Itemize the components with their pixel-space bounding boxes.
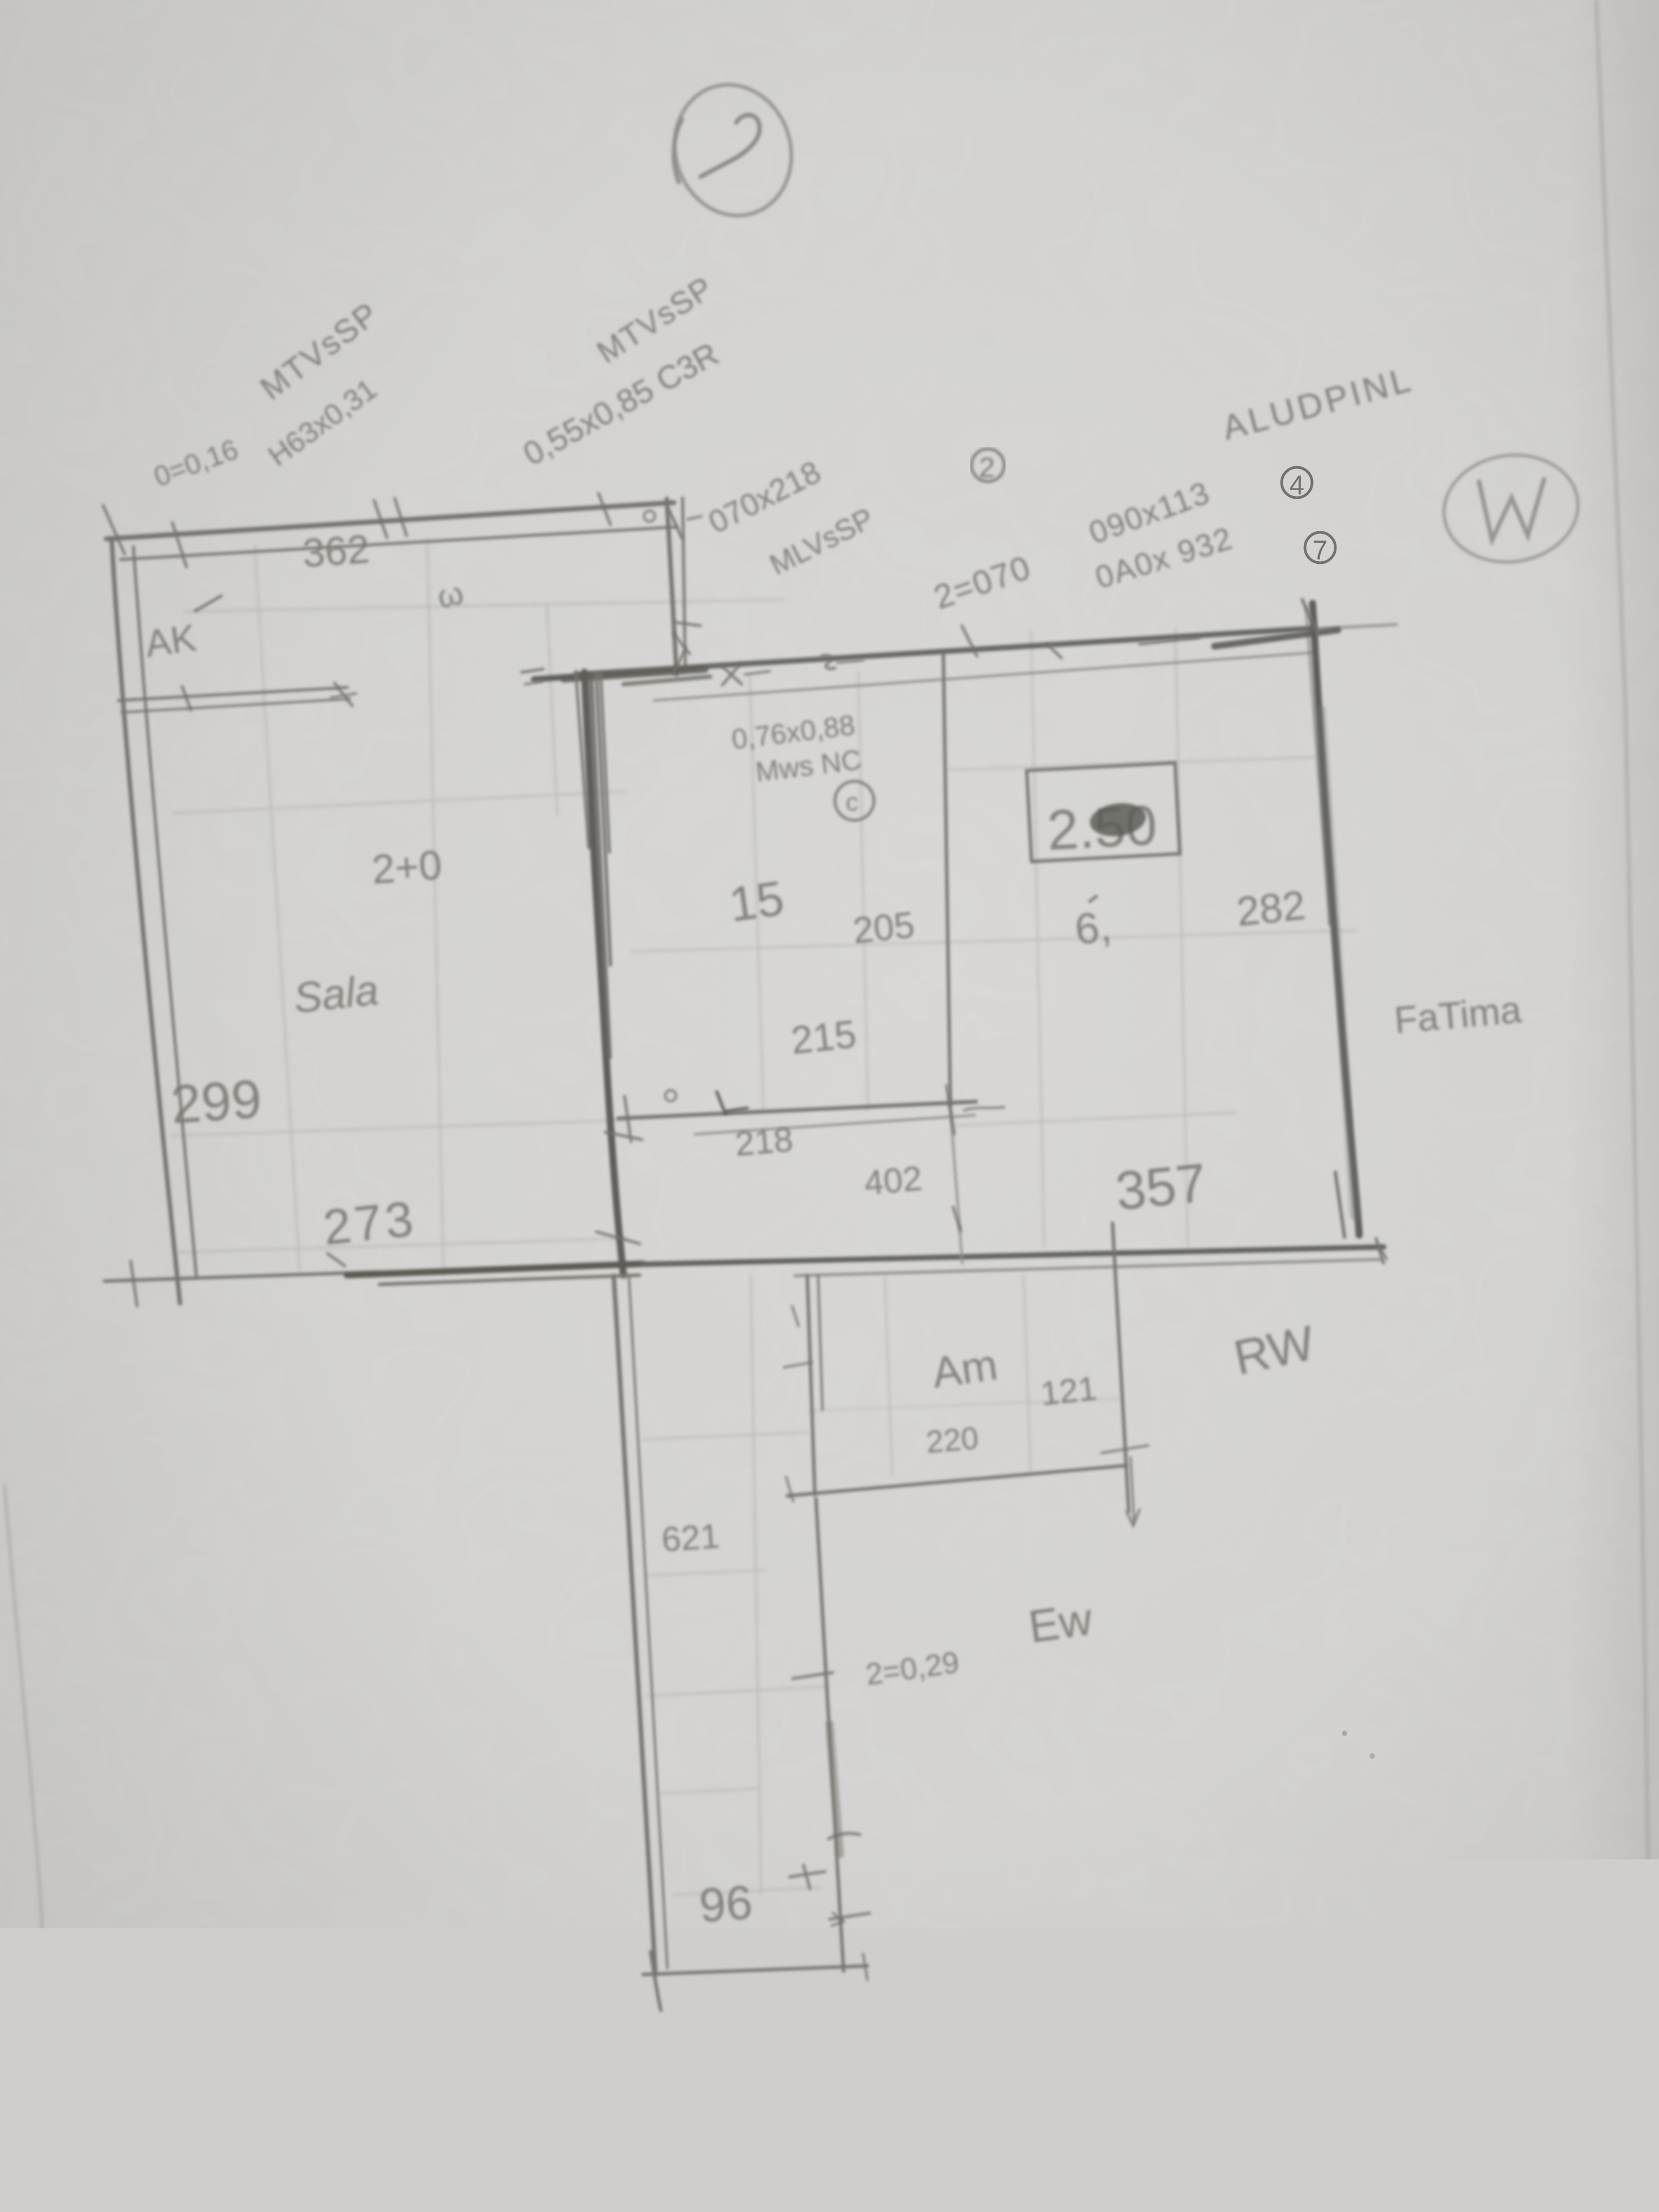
svg-text:121: 121 [1039,1369,1098,1412]
svg-text:7: 7 [1313,535,1328,565]
svg-text:402: 402 [863,1159,924,1203]
svg-text:AK: AK [143,616,198,665]
svg-text:Sala: Sala [292,966,381,1022]
svg-text:Ew: Ew [1025,1593,1095,1652]
svg-text:273: 273 [320,1191,419,1256]
svg-text:299: 299 [169,1069,263,1135]
svg-text:362: 362 [301,526,371,576]
svg-text:2+0: 2+0 [370,842,443,893]
svg-text:2: 2 [979,452,995,484]
svg-text:357: 357 [1113,1152,1210,1222]
svg-text:96: 96 [697,1875,754,1932]
svg-text:6,: 6, [1072,902,1114,953]
svg-text:4: 4 [1289,470,1304,500]
svg-text:218: 218 [734,1120,795,1163]
svg-text:c: c [846,788,858,816]
svg-text:Am: Am [929,1340,1000,1397]
svg-text:15: 15 [726,871,787,933]
svg-text:621: 621 [660,1516,721,1559]
svg-text:220: 220 [924,1420,980,1460]
svg-text:215: 215 [789,1013,858,1063]
svg-text:282: 282 [1234,882,1308,935]
svg-text:205: 205 [851,904,917,951]
